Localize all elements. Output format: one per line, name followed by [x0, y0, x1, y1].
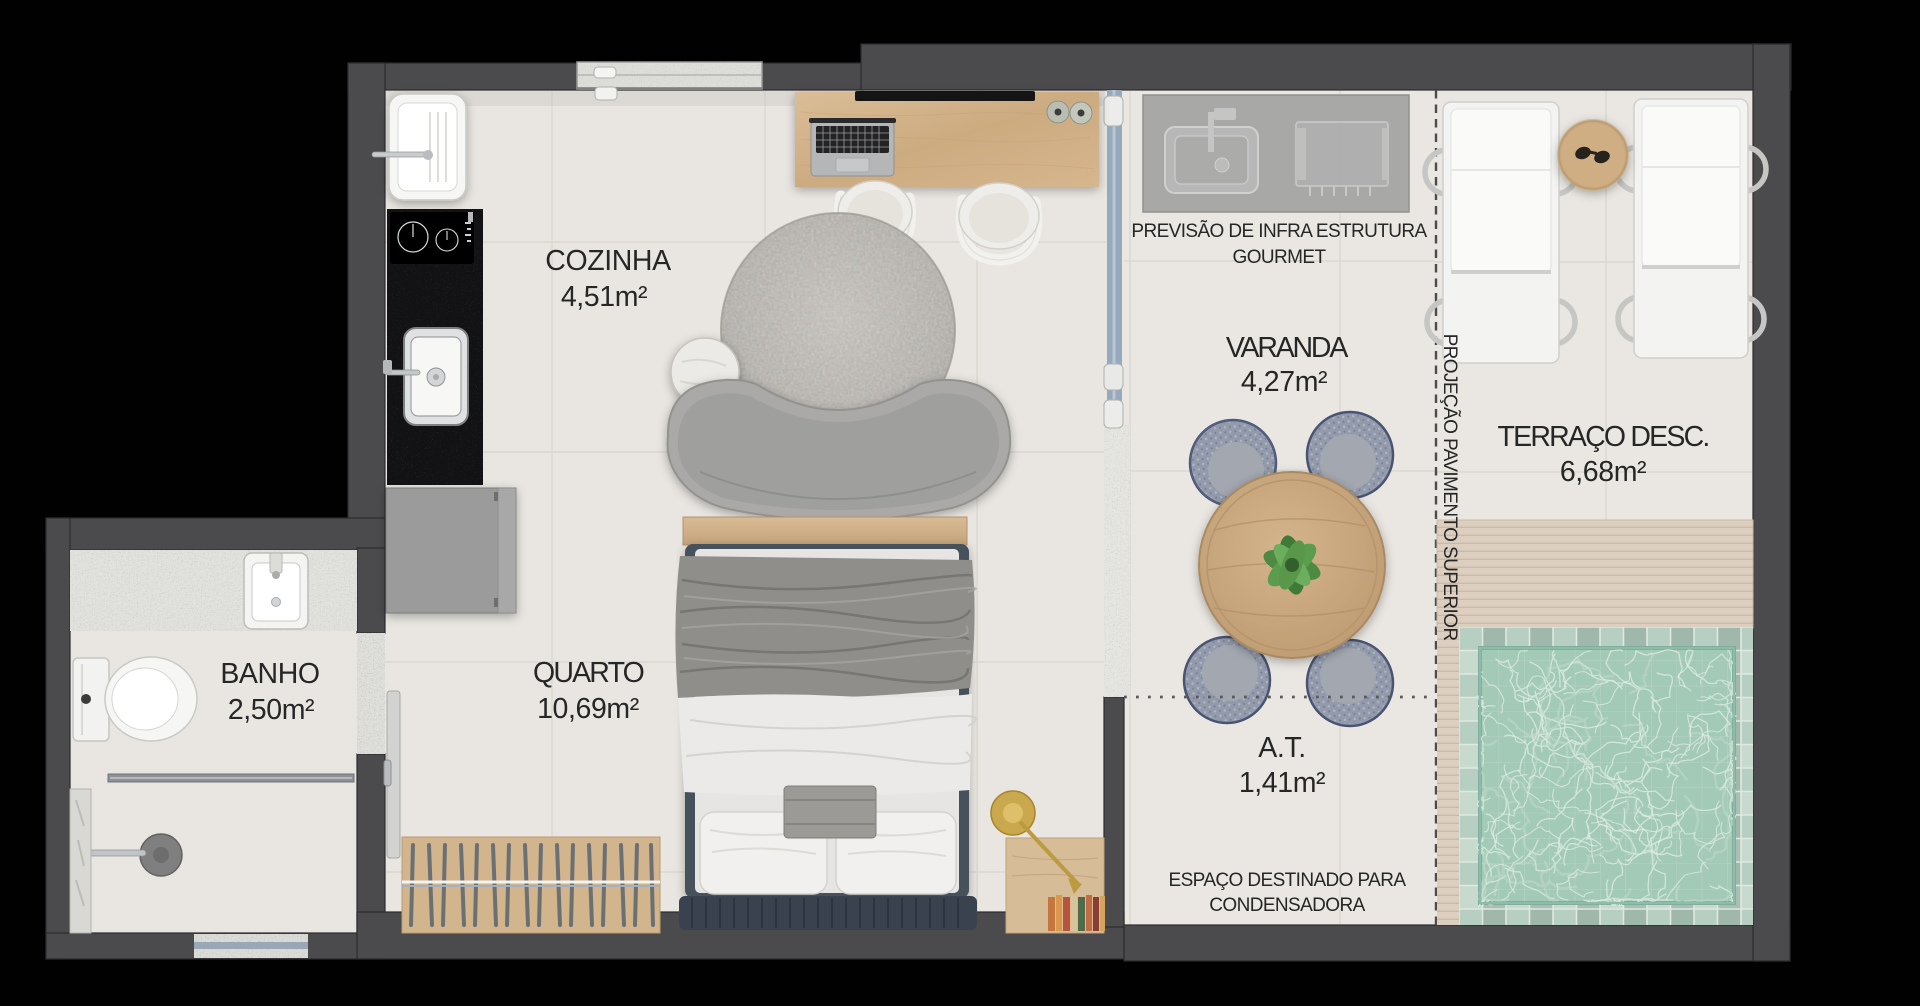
svg-text:1,41m²: 1,41m² — [1239, 767, 1325, 799]
svg-text:2,50m²: 2,50m² — [228, 694, 314, 726]
svg-text:A.T.: A.T. — [1258, 732, 1306, 764]
svg-text:PREVISÃO DE INFRA ESTRUTURA: PREVISÃO DE INFRA ESTRUTURA — [1131, 220, 1427, 242]
svg-text:TERRAÇO DESC.: TERRAÇO DESC. — [1498, 421, 1709, 453]
svg-text:QUARTO: QUARTO — [533, 657, 644, 689]
svg-text:6,68m²: 6,68m² — [1560, 456, 1646, 488]
svg-text:4,27m²: 4,27m² — [1241, 366, 1327, 398]
svg-text:ESPAÇO DESTINADO PARA: ESPAÇO DESTINADO PARA — [1169, 870, 1407, 891]
svg-text:4,51m²: 4,51m² — [561, 281, 647, 313]
svg-text:GOURMET: GOURMET — [1233, 247, 1327, 268]
svg-text:10,69m²: 10,69m² — [537, 693, 639, 725]
svg-text:VARANDA: VARANDA — [1226, 332, 1348, 364]
svg-text:BANHO: BANHO — [220, 658, 319, 690]
svg-text:CONDENSADORA: CONDENSADORA — [1209, 895, 1365, 916]
svg-text:COZINHA: COZINHA — [545, 245, 671, 277]
svg-text:PROJEÇÃO PAVIMENTO SUPERIOR: PROJEÇÃO PAVIMENTO SUPERIOR — [1439, 334, 1461, 641]
